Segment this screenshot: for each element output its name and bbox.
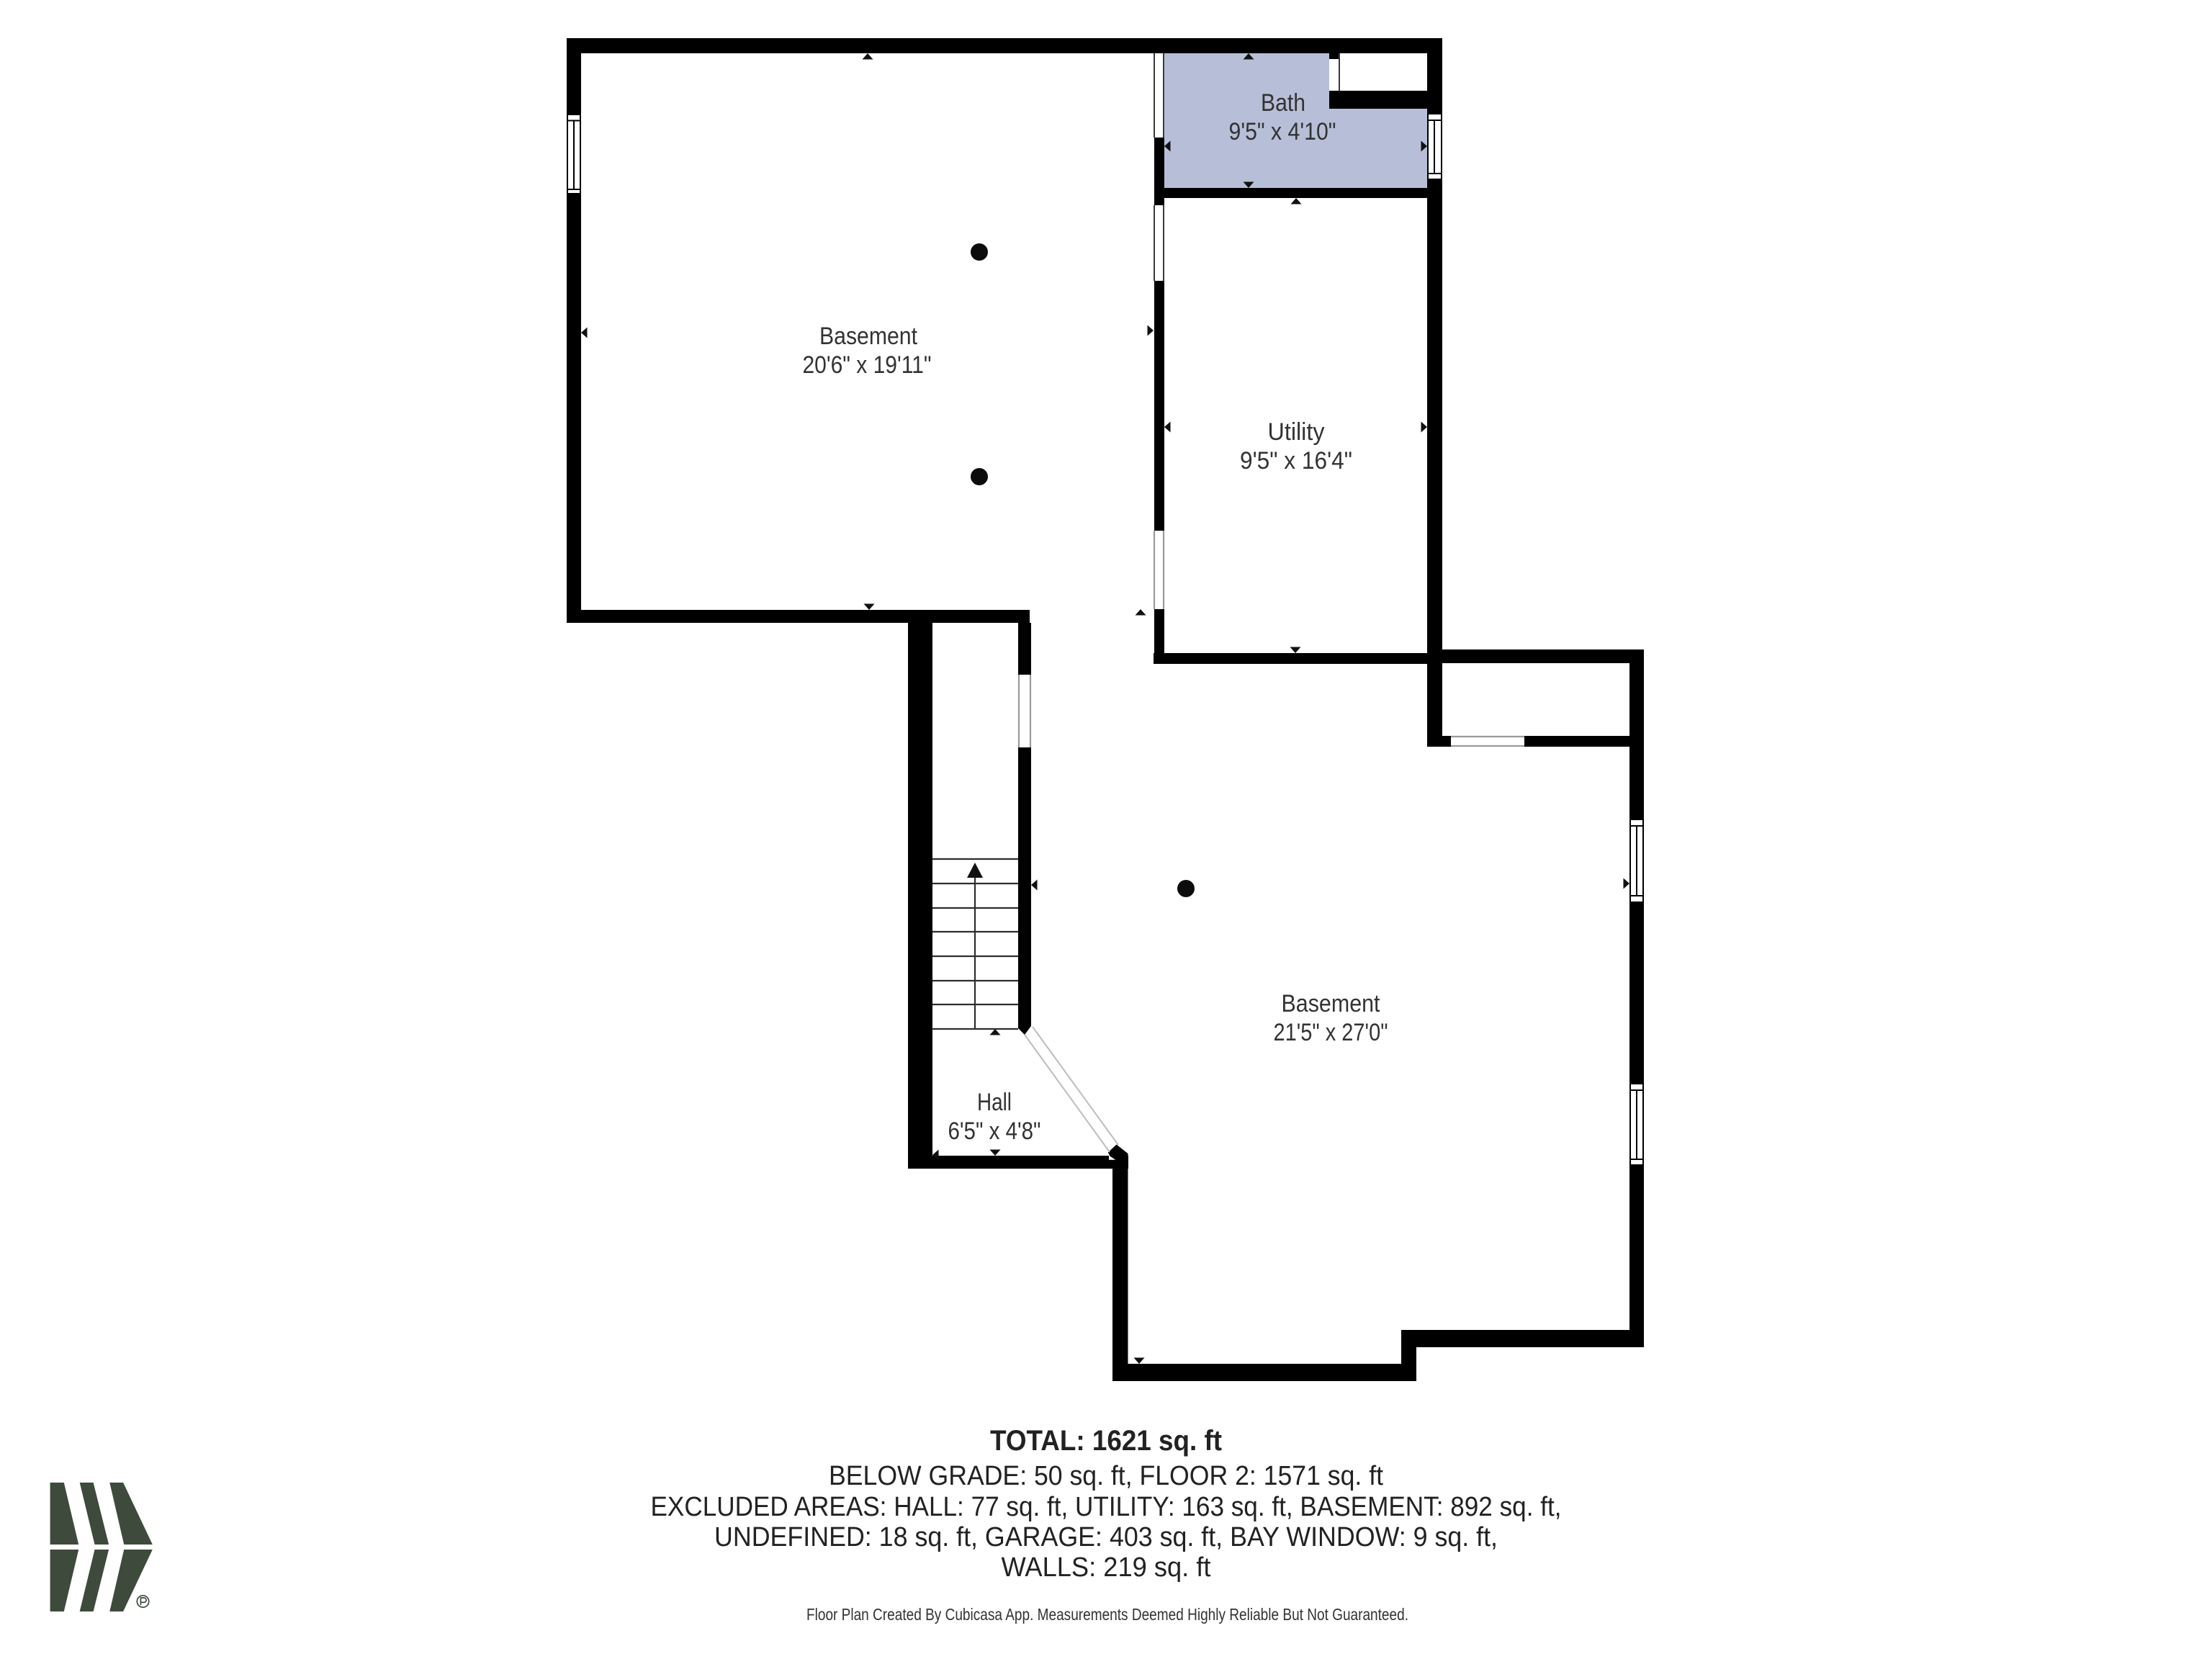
svg-text:BELOW GRADE: 50 sq. ft, FLOOR: BELOW GRADE: 50 sq. ft, FLOOR 2: 1571 sq… [829, 1461, 1383, 1491]
svg-text:9'5" x 16'4": 9'5" x 16'4" [1240, 447, 1352, 475]
svg-text:Utility: Utility [1268, 418, 1326, 446]
svg-text:EXCLUDED AREAS: HALL: 77 sq. f: EXCLUDED AREAS: HALL: 77 sq. ft, UTILITY… [651, 1492, 1562, 1522]
svg-text:Bath: Bath [1261, 89, 1305, 117]
svg-text:9'5" x 4'10": 9'5" x 4'10" [1229, 118, 1336, 145]
svg-text:20'6" x 19'11": 20'6" x 19'11" [803, 351, 932, 379]
svg-text:Basement: Basement [1282, 990, 1380, 1017]
svg-text:Basement: Basement [819, 323, 917, 350]
svg-text:6'5" x 4'8": 6'5" x 4'8" [948, 1118, 1041, 1145]
svg-text:UNDEFINED: 18 sq. ft, GARAGE:: UNDEFINED: 18 sq. ft, GARAGE: 403 sq. ft… [714, 1522, 1498, 1552]
svg-text:TOTAL: 1621 sq. ft: TOTAL: 1621 sq. ft [990, 1425, 1222, 1457]
svg-text:Hall: Hall [977, 1089, 1012, 1116]
svg-text:Floor Plan Created By Cubicasa: Floor Plan Created By Cubicasa App. Meas… [806, 1605, 1408, 1624]
svg-text:21'5" x 27'0": 21'5" x 27'0" [1274, 1019, 1388, 1046]
svg-text:WALLS: 219 sq. ft: WALLS: 219 sq. ft [1002, 1552, 1211, 1583]
